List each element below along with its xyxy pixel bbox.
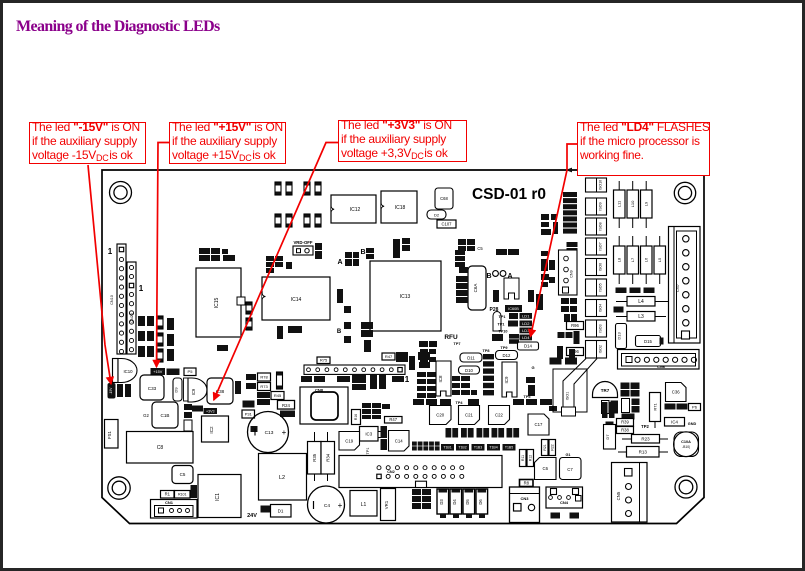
svg-text:R13: R13 (639, 449, 648, 454)
svg-text:24V: 24V (247, 513, 257, 519)
svg-text:L4: L4 (638, 299, 644, 305)
svg-text:L5: L5 (657, 257, 662, 262)
svg-text:L8: L8 (617, 257, 622, 262)
svg-text:CN3: CN3 (520, 496, 529, 501)
svg-text:C6: C6 (543, 466, 549, 471)
svg-text:A: A (337, 259, 342, 266)
svg-text:TP4: TP4 (456, 401, 464, 405)
svg-text:TP1: TP1 (499, 315, 506, 319)
svg-text:D10: D10 (465, 368, 473, 373)
svg-text:D5: D5 (465, 499, 470, 505)
svg-text:GND: GND (688, 422, 697, 426)
svg-text:R24: R24 (282, 403, 290, 408)
svg-text:IC2: IC2 (209, 426, 214, 434)
svg-text:ISO2: ISO2 (599, 345, 603, 353)
svg-text:C33: C33 (148, 386, 157, 391)
svg-text:IC14: IC14 (291, 297, 302, 303)
svg-text:R38: R38 (621, 427, 629, 432)
svg-text:IC15: IC15 (214, 298, 220, 309)
svg-text:T1B5: T1B5 (505, 445, 513, 449)
svg-text:C5: C5 (477, 246, 483, 251)
svg-text:IC8: IC8 (438, 375, 443, 383)
svg-text:C7: C7 (567, 467, 573, 472)
svg-text:LD2: LD2 (522, 321, 530, 326)
svg-text:TP7: TP7 (454, 342, 461, 346)
svg-text:IC4: IC4 (671, 419, 678, 424)
svg-text:D2: D2 (434, 213, 440, 218)
svg-text:ISO1: ISO1 (566, 392, 570, 401)
svg-text:LD4: LD4 (522, 335, 530, 340)
svg-text:ISO5: ISO5 (599, 283, 603, 291)
svg-text:R47: R47 (389, 417, 397, 422)
svg-text:-B10|: -B10| (682, 445, 690, 449)
svg-text:L6: L6 (644, 257, 649, 262)
svg-text:TP5: TP5 (524, 395, 531, 399)
svg-text:T1B1: T1B1 (443, 445, 451, 449)
svg-text:R16: R16 (354, 414, 358, 420)
svg-text:ISO4: ISO4 (599, 304, 603, 312)
svg-text:VRD-OFF: VRD-OFF (293, 240, 312, 245)
svg-text:C8: C8 (157, 445, 164, 451)
svg-text:CN1: CN1 (165, 500, 174, 505)
svg-text:L9: L9 (644, 201, 649, 206)
svg-text:C19: C19 (345, 438, 353, 443)
svg-text:IC13: IC13 (400, 294, 411, 300)
svg-text:C10A: C10A (681, 440, 691, 444)
svg-text:T1B4: T1B4 (489, 445, 497, 449)
svg-text:R21: R21 (543, 444, 547, 450)
svg-text:R34: R34 (325, 453, 330, 461)
svg-text:C1B: C1B (161, 413, 170, 418)
svg-text:IC18: IC18 (395, 205, 406, 211)
svg-text:R12: R12 (528, 455, 532, 461)
svg-text:R23: R23 (641, 436, 650, 441)
svg-text:D6: D6 (478, 499, 483, 505)
svg-text:G: G (531, 365, 534, 370)
svg-text:D4: D4 (452, 499, 457, 505)
svg-text:R75: R75 (320, 358, 328, 363)
svg-text:C107: C107 (441, 221, 452, 226)
svg-text:LD1: LD1 (522, 313, 530, 318)
svg-text:R101: R101 (178, 493, 187, 497)
svg-text:L3: L3 (638, 314, 644, 320)
svg-text:D9: D9 (174, 387, 179, 393)
svg-text:1: 1 (108, 247, 113, 256)
svg-text:L1: L1 (361, 502, 367, 508)
svg-text:C20: C20 (436, 413, 444, 418)
svg-text:C36: C36 (672, 390, 680, 395)
svg-text:FS1: FS1 (107, 430, 112, 438)
svg-text:R78: R78 (260, 374, 268, 379)
svg-text:G2: G2 (143, 413, 149, 418)
svg-text:CN7: CN7 (675, 283, 680, 292)
svg-text:CN6: CN6 (657, 364, 666, 369)
svg-text:C14: C14 (395, 438, 403, 443)
svg-text:VR1: VR1 (384, 500, 389, 509)
svg-text:C5: C5 (180, 472, 186, 477)
svg-text:ISO10: ISO10 (599, 180, 603, 190)
svg-text:1: 1 (139, 284, 144, 293)
svg-text:G1: G1 (565, 453, 570, 457)
svg-text:+3V3: +3V3 (206, 409, 215, 413)
svg-text:TR7: TR7 (601, 388, 610, 393)
svg-text:CSD-01 r0: CSD-01 r0 (472, 186, 546, 203)
svg-text:TP1: TP1 (498, 323, 505, 327)
svg-text:IC9: IC9 (191, 388, 196, 395)
svg-text:RFU: RFU (444, 334, 458, 341)
svg-text:ISO8: ISO8 (599, 222, 603, 230)
svg-text:IC60B: IC60B (508, 307, 519, 311)
svg-text:D12: D12 (503, 353, 511, 358)
svg-text:TP8: TP8 (483, 349, 490, 353)
svg-text:L2: L2 (279, 475, 285, 481)
svg-text:LD3: LD3 (522, 328, 530, 333)
svg-text:C68: C68 (440, 196, 448, 201)
svg-text:CN20: CN20 (130, 313, 134, 323)
svg-text:C4: C4 (324, 503, 330, 509)
svg-text:TP1: TP1 (366, 448, 370, 455)
svg-text:R11: R11 (521, 455, 525, 461)
svg-text:B: B (360, 249, 365, 256)
svg-text:CN9: CN9 (570, 270, 574, 278)
svg-text:C22: C22 (495, 413, 503, 418)
svg-text:ISO3: ISO3 (599, 324, 603, 332)
svg-text:C17: C17 (535, 422, 543, 427)
svg-text:IC9: IC9 (504, 376, 509, 384)
svg-text:R8: R8 (524, 480, 530, 485)
svg-text:B: B (337, 329, 342, 335)
svg-text:CN5: CN5 (616, 491, 621, 500)
svg-text:IC10: IC10 (123, 369, 133, 374)
svg-text:IC3: IC3 (365, 431, 372, 436)
svg-text:P6: P6 (692, 404, 698, 409)
svg-text:TP2: TP2 (641, 424, 649, 429)
svg-text:+15V: +15V (153, 370, 162, 374)
svg-text:D15: D15 (644, 339, 652, 344)
svg-text:CN10: CN10 (110, 295, 114, 305)
svg-text:P5: P5 (188, 369, 194, 374)
svg-text:T1B3: T1B3 (474, 445, 482, 449)
svg-text:C6A: C6A (473, 284, 478, 293)
svg-text:1: 1 (405, 375, 410, 384)
svg-text:D3: D3 (439, 499, 444, 505)
svg-text:R47: R47 (385, 354, 393, 359)
svg-text:TP9: TP9 (501, 346, 508, 350)
svg-text:CN8: CN8 (315, 388, 324, 393)
svg-text:P31: P31 (245, 411, 253, 416)
svg-text:-15V: -15V (109, 387, 113, 395)
svg-text:D13: D13 (617, 332, 622, 340)
svg-text:R1: R1 (165, 492, 171, 497)
svg-text:+: + (338, 501, 343, 510)
svg-text:R39: R39 (621, 420, 629, 425)
svg-text:CN2: CN2 (387, 470, 395, 474)
svg-text:R22: R22 (550, 444, 554, 450)
svg-text:L7: L7 (630, 257, 635, 262)
svg-text:ISO7: ISO7 (599, 242, 603, 250)
svg-text:C21: C21 (465, 413, 473, 418)
svg-text:+: + (282, 428, 287, 437)
svg-text:ISO6: ISO6 (599, 263, 603, 271)
svg-text:R96: R96 (571, 323, 579, 328)
svg-text:R35: R35 (312, 453, 317, 461)
svg-text:D7: D7 (605, 434, 610, 440)
svg-text:R45: R45 (274, 393, 282, 398)
svg-text:R73: R73 (260, 384, 268, 389)
svg-text:IC12: IC12 (350, 207, 361, 213)
svg-text:C13: C13 (265, 430, 274, 436)
svg-text:D1: D1 (278, 509, 284, 514)
svg-text:D14: D14 (524, 344, 532, 349)
svg-text:B: B (486, 273, 491, 280)
svg-text:R71: R71 (652, 403, 657, 411)
svg-text:T1B2: T1B2 (458, 445, 466, 449)
svg-text:L10: L10 (630, 200, 635, 207)
svg-text:TP10: TP10 (498, 330, 507, 334)
svg-text:L11: L11 (617, 200, 622, 207)
svg-text:ISO9: ISO9 (599, 202, 603, 210)
svg-text:IC1: IC1 (215, 493, 221, 501)
svg-text:D11: D11 (467, 356, 475, 361)
svg-text:CN4: CN4 (560, 500, 569, 505)
